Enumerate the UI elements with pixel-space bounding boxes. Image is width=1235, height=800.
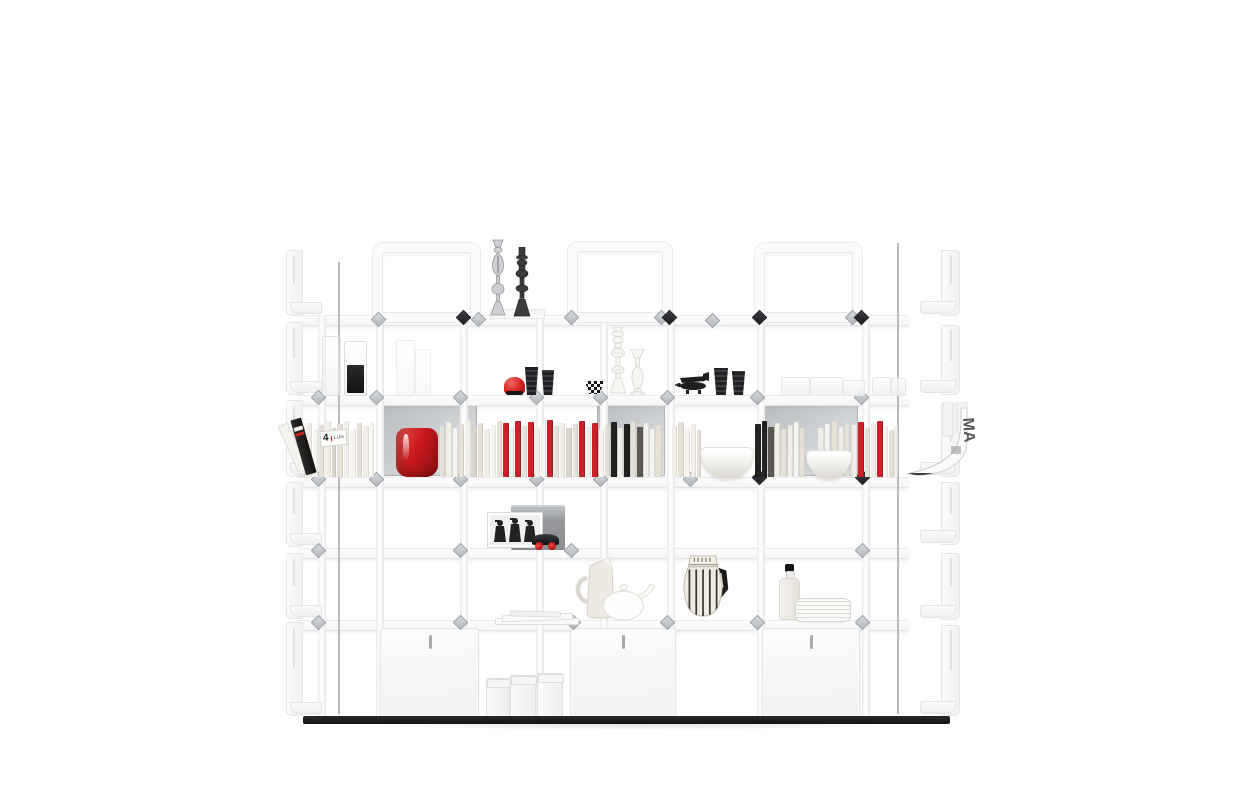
white-bud-vase [628,349,647,395]
leaning-book [286,416,320,477]
book-spine [656,425,662,477]
book-spine [685,428,690,477]
book-spine [579,421,585,477]
side-panel-right [922,250,960,314]
red-toy [504,377,525,395]
white-bowl [700,447,754,479]
book-spine [459,424,464,477]
book-spine [644,423,649,477]
book-spine [672,426,677,477]
book-spine [618,428,623,477]
book-spine [865,428,870,477]
product-photo-stage: 4 LUN MA [0,0,1235,800]
canister-lid [538,674,565,683]
red-vase [396,428,438,477]
glass-beaker [322,336,341,396]
book-spine [755,424,761,477]
side-panel-right [922,553,960,618]
canister-lid [487,679,512,688]
candlestick-silver-graphic [486,238,510,318]
book-spine [465,420,471,477]
magazine-title-letters: MA [959,417,975,443]
calendar-card: 4 LUN [319,429,347,447]
side-panel-slot [950,255,952,284]
book-spine [781,429,787,477]
calendar-month-label: LUN [334,435,344,440]
red-vase-highlight [403,434,409,461]
candlestick-silver [486,238,510,318]
book-spine [484,429,490,477]
book-spine [535,428,540,477]
side-panel-slot [950,630,952,670]
book-spine [852,425,857,477]
book-spine [453,428,458,477]
book-spine [515,421,521,477]
side-panel-slot [950,558,952,587]
toy-car-wheel [535,542,543,550]
side-panel-right [922,482,960,543]
cabinet-handle [810,635,813,649]
black-cup [713,368,729,395]
white-canister [510,675,536,718]
striped-pitcher [675,554,733,620]
book-spine [478,423,483,477]
candlestick-black-graphic [510,247,534,318]
book-spine [547,420,553,477]
support-rod [897,243,899,714]
book-spine [871,424,876,477]
side-panel-right-foot [920,701,956,714]
black-liquid [347,365,364,393]
side-panel-left-foot [290,702,322,714]
book-spine [800,428,805,477]
book-spine [894,426,898,477]
calendar-red-mark [330,436,332,441]
notebook-stack [495,611,577,625]
side-panel-slot [950,487,952,514]
side-panel-slot [293,628,295,667]
side-panel-right-foot [920,605,956,618]
plate-stack [795,598,851,622]
top-frame [755,243,862,322]
book-spine [877,421,883,477]
black-cup [731,371,746,395]
plinth-base [303,716,950,724]
support-rod [338,262,340,714]
side-panel-slot [293,256,295,283]
cabinet-door [380,628,479,718]
book-spine [762,421,767,477]
book-spine [573,424,578,477]
book-spine [605,425,610,477]
book-spine [768,427,774,477]
book-spine [637,427,643,477]
book-spine [631,421,636,477]
side-panel-right [922,325,960,393]
book-spine [775,423,780,477]
side-panel-right-foot [920,380,956,393]
book-spine [554,426,559,477]
book-spine [691,424,696,477]
glass-beaker [415,349,431,396]
book-spine [440,426,445,477]
book-spine [650,429,655,477]
top-frame [568,242,672,322]
toy-car-wheel [548,542,556,550]
white-bud-vase-graphic [628,349,647,395]
book-spine [611,422,617,477]
book-spine [884,427,888,477]
glass-tray [843,380,865,396]
cabinet-handle [429,635,432,649]
glass-tray [810,377,843,396]
book-spine [788,425,793,477]
side-panel-slot [293,488,295,514]
candlestick-black [510,247,534,318]
cabinet-door [762,628,860,718]
striped-pitcher-graphic [675,554,733,620]
white-canister [486,678,510,718]
book-spine [794,422,799,477]
book-spine [560,423,565,477]
side-panel-right [922,625,960,714]
white-teapot-graphic [596,580,660,622]
vertical-post [862,315,870,716]
side-panel-left [286,482,320,545]
book-spine [472,427,477,477]
book-spine [503,423,509,477]
side-panel-left [286,250,320,314]
shelving-unit-scene [0,0,1235,800]
white-canister [537,673,563,718]
book-spine [446,422,452,477]
side-panel-right-foot [920,301,956,314]
white-teapot [596,580,660,622]
glass-beaker [396,340,415,396]
book-spine [858,422,864,477]
book-spine [522,426,527,477]
book-spine [624,424,630,477]
glass-with-black-liquid [344,341,367,396]
side-panel-right-foot [920,530,956,543]
candlestick-white-graphic [606,327,630,395]
book-spine [566,428,572,477]
toy-car [532,534,559,550]
toy-airplane-graphic [674,371,712,395]
side-panel-left [286,553,320,617]
candlestick-white [606,327,630,395]
book-spine [586,427,591,477]
side-panel-slot [293,328,295,358]
side-panel-left [286,322,320,393]
side-panel-left [286,622,320,714]
book-spine [357,423,362,477]
book-spine [510,428,514,477]
toy-airplane [674,371,712,395]
side-panel-slot [293,559,295,586]
book-label-red [295,431,304,436]
side-panel-left-foot [290,302,322,314]
book-spine [497,421,502,477]
book-spine [363,426,369,477]
book-spine [370,422,374,477]
book-spine [528,422,534,477]
cabinet-door [570,628,676,718]
cabinet-handle [622,635,625,649]
magazine-roll: MA [903,402,975,480]
book-spine [599,429,604,477]
red-toy-base [506,391,524,395]
glass-tray [781,377,810,396]
book-spine [350,429,356,477]
glass-tray [872,377,891,396]
side-panel-slot [950,330,952,361]
canister-lid [511,676,538,685]
calendar-day: 4 [323,433,329,443]
book-spine [592,423,598,477]
book-spine [541,424,546,477]
book-spine [491,425,496,477]
book-spine [678,422,684,477]
floor-shadow [310,724,950,733]
glass-tray [891,378,906,396]
